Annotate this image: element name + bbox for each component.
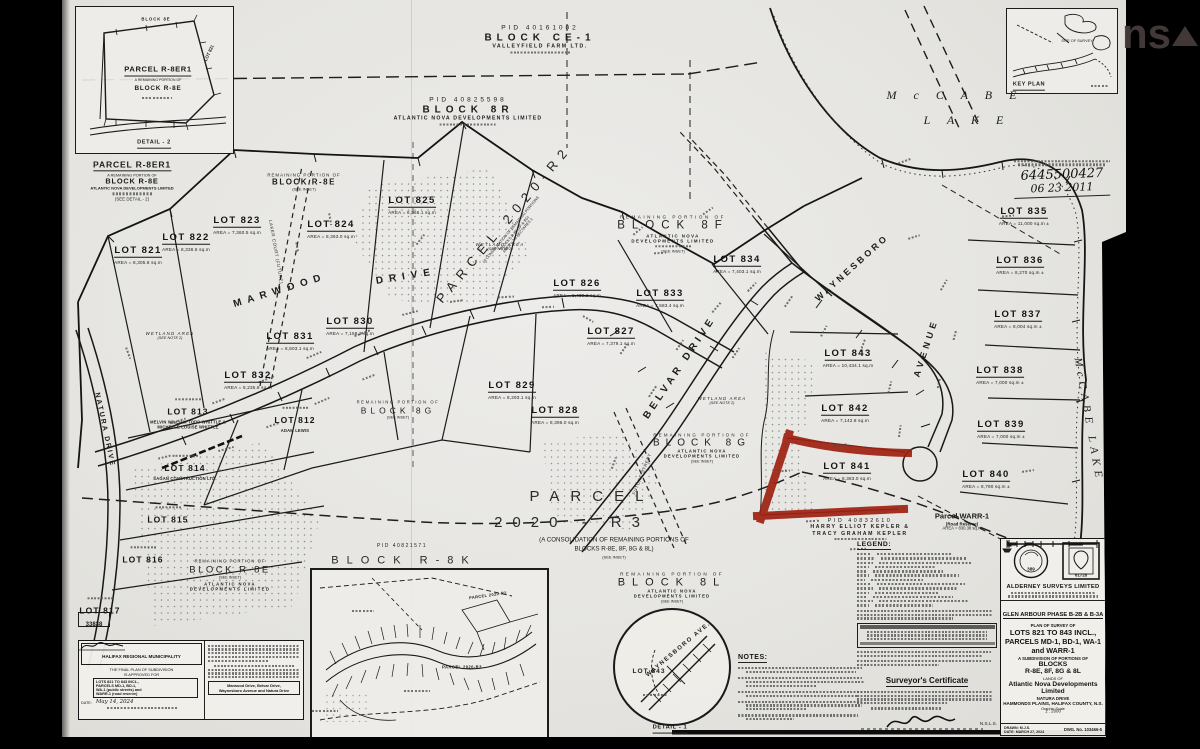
- lot-label-lot-837: LOT 837AREA = 8,004 sq.m ±: [994, 304, 1042, 329]
- dwg-number: DWG. No. 103466-5: [1064, 727, 1102, 732]
- legend-row: [857, 579, 997, 581]
- block-ce1-name: BLOCK CE-1: [484, 32, 595, 44]
- scan-border-bottom: [0, 737, 1200, 749]
- hrm-date: May 14, 2024: [96, 699, 134, 705]
- watermark-roof-icon: [1172, 26, 1198, 46]
- old-lot-label-lot-812: LOT 812ADAM LEWIS: [274, 405, 315, 433]
- hrm-box4: WARR-1 (road reserve): [96, 692, 195, 696]
- hrm-signature: [79, 641, 125, 651]
- registration-date: 06 23 2011: [1014, 181, 1110, 199]
- lot-label-lot-834: LOT 834AREA = 7,403.1 sq.m: [713, 249, 761, 274]
- parcel-2020r3-sub1: (A CONSOLIDATION OF REMAINING PORTIONS O…: [539, 536, 689, 543]
- lot-label-lot-825: LOT 825AREA = 8,366.1 sq.m: [388, 190, 436, 215]
- lot-label-lot-824: LOT 824AREA = 8,363.0 sq.m: [307, 214, 355, 239]
- scale-ratio: 1 : 2000: [1045, 708, 1061, 713]
- stamp-number: 61728: [1075, 572, 1087, 577]
- block-8g-name: BLOCK 8G: [357, 405, 440, 415]
- watermark-text-left: ns: [1122, 10, 1171, 57]
- devltd-text: DEVELOPMENTS LIMITED: [617, 238, 729, 243]
- surveyor-signature: N.S.L.S.: [857, 711, 997, 733]
- old-lot-label-lot-817: LOT 817: [79, 595, 120, 618]
- lot-label-lot-836: LOT 836AREA = 8,270 sq.m ±: [996, 250, 1044, 275]
- warr1-area: AREA = 830.38 sq.m: [935, 527, 989, 532]
- see-inset-text: (SEE INSET): [267, 187, 340, 192]
- block-ce1-owner: VALLEYFIELD FARM LTD.: [484, 44, 595, 50]
- remaining-r8e-top: REMAINING PORTION OF BLOCK R-8E (SEE INS…: [267, 172, 340, 191]
- legend-row: [857, 583, 997, 585]
- see-inset-text: (SEE INSET): [618, 600, 727, 604]
- detail2-caption: DETAIL - 2: [137, 140, 171, 149]
- block-r8k-name: BLOCK R-8K: [331, 555, 476, 568]
- parcel-r8er1-see: (SEE DETAIL - 2): [90, 196, 173, 201]
- key-plan-inset: SITE OF SURVEY KEY PLAN: [1006, 8, 1118, 94]
- block-ce1-label: PID 40161002 BLOCK CE-1 VALLEYFIELD FARM…: [484, 25, 595, 56]
- mccabe-lake-name2: L A K E: [924, 113, 1011, 127]
- hrm-approval-block: HALIFAX REGIONAL MUNICIPALITY THE FINAL …: [78, 640, 304, 720]
- registration-block: 6445500427 06 23 2011: [1014, 158, 1110, 197]
- legend-row: [857, 562, 997, 564]
- see-inset-text: (SEE INSET): [653, 459, 751, 463]
- wetland-label-1: WETLAND AREA (SEE NOTE 2): [476, 242, 525, 252]
- block-8f-name: BLOCK 8F: [617, 220, 729, 234]
- see-inset-text: (SEE INSET): [617, 249, 729, 254]
- certificate-title: Surveyor's Certificate: [886, 676, 968, 687]
- devltd-text: DEVELOPMENTS LIMITED: [189, 587, 271, 592]
- legend-row: [857, 604, 997, 606]
- tb-l6: BLOCKS: [1001, 661, 1105, 668]
- wetland-label-2: WETLAND AREA (SEE NOTE 2): [698, 396, 747, 406]
- lot-label-lot-831: LOT 831AREA = 8,503.1 sq.m: [266, 326, 314, 351]
- detail1-lot: LOT 843: [632, 668, 665, 676]
- legend-title: LEGEND:: [857, 541, 891, 550]
- old-lot-label-lot-814: LOT 814SAGAN CONSTRUCTION LTD.: [153, 453, 216, 481]
- certificate-suffix: N.S.L.S.: [980, 721, 997, 726]
- lot-label-lot-826: LOT 826AREA = 8,439.3 sq.m: [553, 273, 601, 298]
- old-lot-label-lot-815: LOT 815: [147, 504, 188, 527]
- hrm-streets2: Waynesboro Avenue and Natura Drive: [210, 688, 298, 693]
- lot-label-lot-821: LOT 821AREA = 8,305.8 sq.m: [114, 240, 162, 265]
- mccabe-lake-name1: M c C A B E: [887, 88, 1024, 102]
- seal-number: 389: [1027, 566, 1035, 571]
- lot-label-lot-823: LOT 823AREA = 7,360.5 sq.m: [213, 210, 261, 235]
- detail-2-inset: BLOCK 8E LOT 821 PARCEL R-8ER1 A REMAINI…: [75, 6, 234, 154]
- project-name: GLEN ARBOUR PHASE B-2B & B-3A: [1003, 612, 1104, 619]
- lot-label-lot-828: LOT 828AREA = 8,396.0 sq.m: [531, 400, 579, 425]
- old-lot-label-lot-813: LOT 813MELVIN WILLIAM TODD WHITTLE &MICH…: [150, 396, 226, 429]
- tb-l10: Limited: [1001, 688, 1105, 695]
- tb-l4: and WARR-1: [1001, 646, 1105, 655]
- firm-row: ALDERNEY SURVEYS LIMITED: [1001, 583, 1105, 601]
- block-r8e-name: BLOCK R-8E: [189, 565, 271, 576]
- lot-label-lot-842: LOT 842AREA = 7,142.8 sq.m: [821, 398, 869, 423]
- tb-l3: PARCELS MD-1, BD-1, WA-1: [1001, 637, 1105, 646]
- legend-row: [857, 566, 997, 568]
- hrm-date-label: DATE:: [81, 701, 92, 705]
- lot-label-lot-840: LOT 840AREA = 8,790 sq.m ±: [962, 464, 1010, 489]
- photo-watermark: nsar: [1122, 10, 1200, 67]
- detail2-title: PARCEL R-8ER1: [124, 66, 191, 77]
- block-8g-west-label: REMAINING PORTION OF BLOCK 8G (SEE INSET…: [357, 400, 440, 419]
- parcel-r8er1-title: PARCEL R-8ER1: [93, 159, 171, 171]
- legend-row: [857, 592, 997, 594]
- wetland-label-3: WETLAND AREA (SEE NOTE 2): [146, 331, 195, 341]
- legend-row: [857, 587, 997, 589]
- plan-sheet: PID 40161002 BLOCK CE-1 VALLEYFIELD FARM…: [62, 0, 1126, 740]
- block-r8k-pid: PID 40821571: [377, 544, 427, 550]
- lot-label-lot-822: LOT 822AREA = 8,336.5 sq.m: [162, 227, 210, 252]
- block-8r-name: BLOCK 8R: [394, 104, 543, 116]
- legend-row: [857, 574, 997, 576]
- block-r8e-sw-label: REMAINING PORTION OF BLOCK R-8E (SEE INS…: [189, 560, 271, 593]
- tb-l7: R-8E, 8F, 8G & 8L: [1001, 668, 1105, 675]
- see-inset-text: (SEE INSET): [189, 576, 271, 580]
- coordinate-table: [857, 623, 997, 648]
- annotation-noise: [542, 306, 554, 309]
- lot-label-lot-841: LOT 841AREA = 8,383.0 sq.m: [823, 456, 871, 481]
- title-block: 389 61728 ALDERNEY SURVEYS LIMITED GLEN …: [1000, 538, 1106, 736]
- detail2-block: BLOCK R-8E: [134, 85, 181, 93]
- wetland-note: (SEE NOTE 2): [476, 247, 525, 251]
- see-inset-text: (SEE INSET): [357, 415, 440, 419]
- legend-row: [857, 570, 997, 572]
- legend-block: LEGEND: Surveyor's Certificate: [857, 533, 997, 733]
- parcel-r8er1-label: PARCEL R-8ER1 A REMAINING PORTION OF BLO…: [90, 154, 173, 201]
- firm-name: ALDERNEY SURVEYS LIMITED: [1004, 584, 1102, 590]
- lot-label-lot-838: LOT 838AREA = 7,000 sq.m ±: [976, 360, 1024, 385]
- tb-l2: LOTS 821 TO 843 INCL.,: [1001, 628, 1105, 637]
- detail2-sub: A REMAINING PORTION OF: [135, 78, 182, 82]
- lot-label-lot-839: LOT 839AREA = 7,000 sq.m ±: [977, 414, 1025, 439]
- detail1-caption: DETAIL - 1: [653, 725, 688, 734]
- detail2-block8e: BLOCK 8E: [141, 18, 170, 23]
- lot-label-lot-830: LOT 830AREA = 7,158.3 sq.m: [326, 311, 374, 336]
- block-8g-center-label: REMAINING PORTION OF BLOCK 8G ATLANTIC N…: [653, 432, 751, 463]
- warr1-name: Parcel WARR-1: [935, 513, 989, 522]
- plan-date: DATE: MARCH 27, 2024: [1004, 730, 1044, 734]
- titleblock-footer: DRAWN: M.J.S. DATE: MARCH 27, 2024 DWG. …: [1001, 723, 1105, 735]
- lot-label-lot-829: LOT 829AREA = 8,293.1 sq.m: [488, 375, 536, 400]
- legend-row: [857, 600, 997, 602]
- lot-label-lot-827: LOT 827AREA = 7,379.1 sq.m: [587, 321, 635, 346]
- legend-row: [857, 553, 997, 555]
- wetland-note: (SEE NOTE 2): [146, 336, 195, 340]
- lot-label-lot-833: LOT 833AREA = 7,583.4 sq.m: [636, 283, 684, 308]
- overview-inset: PARCEL 2020-R2 PARCEL 2020-R3: [310, 568, 549, 740]
- parcel-2020r3-sub2: BLOCKS R-8E, 8F, 8G & 8L): [574, 545, 653, 552]
- old-lot-label-lot-816: LOT 816: [122, 544, 163, 567]
- tb-l9: Atlantic Nova Developments: [1001, 681, 1105, 688]
- hrm-l2: IS APPROVED FOR: [81, 672, 202, 677]
- parcel-2020r3-sub3: (SEE INSET): [602, 556, 626, 561]
- legend-row: [857, 596, 997, 598]
- block-ce1-pid: PID 40161002: [484, 25, 595, 33]
- tb-l12: HAMMONDS PLAINS, HALIFAX COUNTY, N.S.: [1001, 701, 1105, 706]
- parcel-2020r3-name1: PARCEL: [530, 488, 655, 506]
- wetland-note: (SEE NOTE 2): [698, 401, 747, 405]
- legend-row: [857, 557, 997, 559]
- graphic-scale-bar: [1001, 539, 1105, 549]
- overview-p2020r3: PARCEL 2020-R3: [442, 666, 482, 671]
- block-8r-owner: ATLANTIC NOVA DEVELOPMENTS LIMITED: [394, 116, 543, 122]
- block-8l-label: REMAINING PORTION OF BLOCK 8L ATLANTIC N…: [618, 572, 727, 605]
- parcel-r8er1-owner: ATLANTIC NOVA DEVELOPMENTS LIMITED: [90, 186, 173, 191]
- detail-1-inset: WAYNESBORO AVE. LOT 843: [613, 608, 731, 726]
- watermark-subline: [1140, 60, 1200, 67]
- scanned-survey-plan: nsar: [0, 0, 1200, 749]
- notes-title: NOTES:: [738, 654, 767, 663]
- block-8r-label: PID 40825598 BLOCK 8R ATLANTIC NOVA DEVE…: [394, 97, 543, 128]
- hrm-title: HALIFAX REGIONAL MUNICIPALITY: [102, 654, 181, 659]
- block-8r-pid: PID 40825598: [394, 97, 543, 105]
- kepler-owner1: HARRY ELLIOT KEPLER &: [810, 524, 909, 530]
- keyplan-site-label: SITE OF SURVEY: [1061, 39, 1092, 43]
- parcel-2020r3-name2: 2020 - R3: [494, 514, 650, 532]
- lot-label-lot-843: LOT 843AREA = 10,434.1 sq.m: [823, 343, 874, 368]
- lot-label-lot-835: LOT 835AREA = 11,000 sq.m ±: [999, 201, 1049, 226]
- lot-label-lot-832: LOT 832AREA = 8,235.8 sq.m: [224, 365, 272, 390]
- parcel-warr1-label: Parcel WARR-1 (Road Reserve) AREA = 830.…: [935, 513, 989, 532]
- notes-block: NOTES:: [738, 646, 870, 722]
- file-ref-number: 33838: [86, 622, 103, 628]
